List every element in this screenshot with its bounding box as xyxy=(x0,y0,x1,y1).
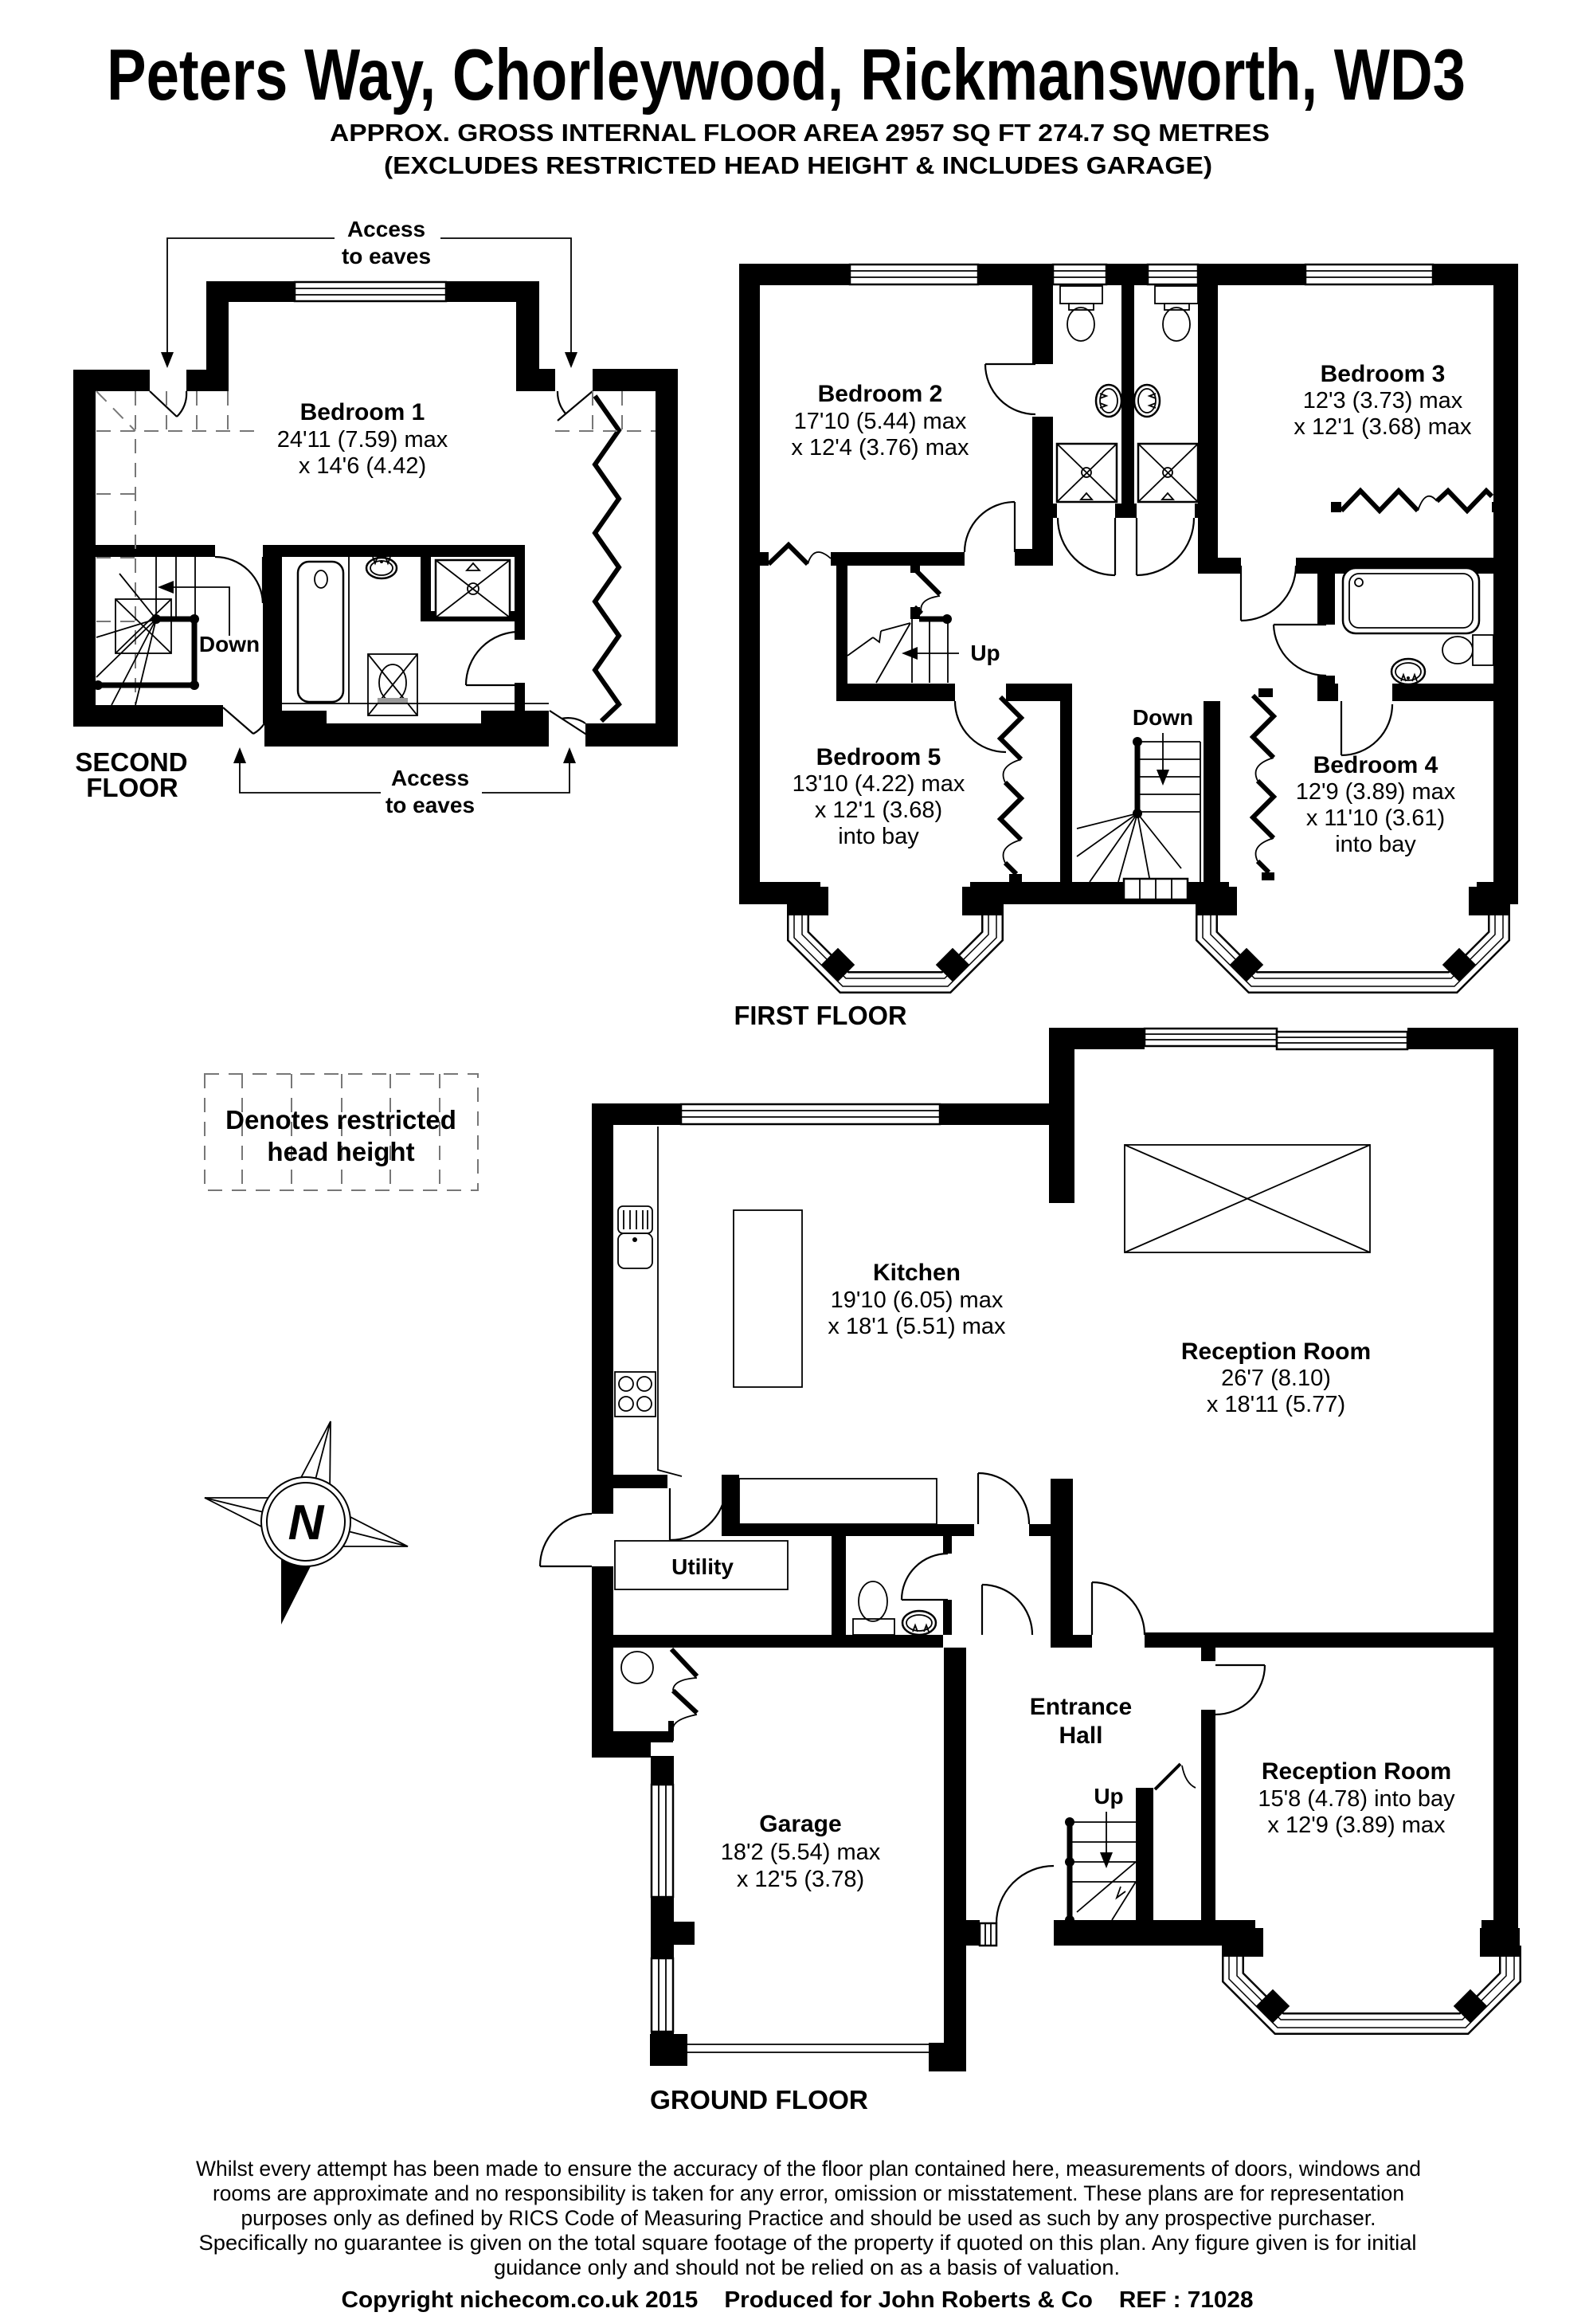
svg-text:x 18'1 (5.51) max: x 18'1 (5.51) max xyxy=(828,1314,1006,1339)
svg-text:(EXCLUDES RESTRICTED HEAD HEIG: (EXCLUDES RESTRICTED HEAD HEIGHT & INCLU… xyxy=(384,151,1212,179)
svg-text:Bedroom 3: Bedroom 3 xyxy=(1321,361,1446,387)
svg-text:guidance only and should not b: guidance only and should not be relied o… xyxy=(494,2255,1120,2279)
svg-text:x 12'5 (3.78): x 12'5 (3.78) xyxy=(737,1867,864,1892)
svg-text:Bedroom 2: Bedroom 2 xyxy=(818,381,943,407)
svg-text:to eaves: to eaves xyxy=(342,244,431,268)
svg-text:x 11'10 (3.61): x 11'10 (3.61) xyxy=(1306,805,1445,831)
svg-text:rooms are approximate and no r: rooms are approximate and no responsibil… xyxy=(213,2181,1404,2205)
svg-text:Down: Down xyxy=(199,632,260,656)
svg-text:x 12'1 (3.68) max: x 12'1 (3.68) max xyxy=(1294,414,1472,440)
svg-text:Access: Access xyxy=(347,217,425,241)
svg-text:Copyright nichecom.co.uk 2015: Copyright nichecom.co.uk 2015 Produced f… xyxy=(342,2287,1254,2313)
svg-text:x 18'11 (5.77): x 18'11 (5.77) xyxy=(1207,1392,1345,1417)
svg-text:17'10 (5.44) max: 17'10 (5.44) max xyxy=(794,409,967,434)
svg-text:15'8 (4.78) into bay: 15'8 (4.78) into bay xyxy=(1258,1786,1455,1812)
svg-text:purposes only as defined by RI: purposes only as defined by RICS Code of… xyxy=(241,2206,1376,2230)
svg-text:Garage: Garage xyxy=(759,1811,841,1837)
svg-text:Kitchen: Kitchen xyxy=(873,1260,961,1286)
svg-text:head height: head height xyxy=(267,1137,414,1166)
svg-text:12'9 (3.89) max: 12'9 (3.89) max xyxy=(1296,779,1456,805)
svg-text:18'2 (5.54) max: 18'2 (5.54) max xyxy=(721,1840,881,1865)
svg-text:into bay: into bay xyxy=(1335,832,1416,857)
svg-text:19'10 (6.05) max: 19'10 (6.05) max xyxy=(831,1287,1004,1313)
svg-text:x 12'4 (3.76) max: x 12'4 (3.76) max xyxy=(791,435,969,460)
svg-text:Entrance: Entrance xyxy=(1030,1694,1132,1720)
svg-text:Down: Down xyxy=(1133,705,1193,730)
svg-text:Bedroom 4: Bedroom 4 xyxy=(1313,752,1438,778)
svg-text:into bay: into bay xyxy=(838,824,919,849)
svg-text:x 12'9 (3.89) max: x 12'9 (3.89) max xyxy=(1267,1813,1446,1838)
svg-text:GROUND FLOOR: GROUND FLOOR xyxy=(650,2085,868,2114)
svg-text:to eaves: to eaves xyxy=(386,793,475,817)
svg-text:Bedroom 1: Bedroom 1 xyxy=(300,399,425,425)
svg-text:Peters Way, Chorleywood, Rickm: Peters Way, Chorleywood, Rickmansworth, … xyxy=(107,35,1466,116)
svg-text:Specifically no guarantee is g: Specifically no guarantee is given on th… xyxy=(199,2231,1417,2255)
svg-text:Utility: Utility xyxy=(671,1554,734,1579)
svg-text:Bedroom 5: Bedroom 5 xyxy=(816,744,941,770)
svg-text:Up: Up xyxy=(1094,1784,1123,1809)
svg-text:Reception Room: Reception Room xyxy=(1181,1338,1371,1365)
svg-text:Whilst every attempt has been: Whilst every attempt has been made to en… xyxy=(196,2157,1421,2181)
svg-text:x 12'1 (3.68): x 12'1 (3.68) xyxy=(815,798,942,823)
svg-text:Access: Access xyxy=(391,766,469,790)
svg-text:24'11 (7.59) max: 24'11 (7.59) max xyxy=(277,427,448,453)
svg-text:FLOOR: FLOOR xyxy=(86,773,178,802)
svg-text:x 14'6 (4.42): x 14'6 (4.42) xyxy=(299,453,426,479)
svg-text:Hall: Hall xyxy=(1059,1722,1102,1749)
svg-text:13'10 (4.22) max: 13'10 (4.22) max xyxy=(793,771,965,797)
svg-text:APPROX. GROSS INTERNAL FLOOR A: APPROX. GROSS INTERNAL FLOOR AREA 2957 S… xyxy=(330,119,1270,147)
svg-text:26'7 (8.10): 26'7 (8.10) xyxy=(1221,1366,1331,1391)
svg-text:Up: Up xyxy=(970,641,1000,665)
svg-text:N: N xyxy=(288,1495,325,1550)
svg-text:Reception Room: Reception Room xyxy=(1262,1758,1451,1785)
svg-text:FIRST FLOOR: FIRST FLOOR xyxy=(734,1001,907,1030)
svg-text:12'3 (3.73) max: 12'3 (3.73) max xyxy=(1303,388,1463,413)
svg-text:Denotes restricted: Denotes restricted xyxy=(225,1105,456,1135)
